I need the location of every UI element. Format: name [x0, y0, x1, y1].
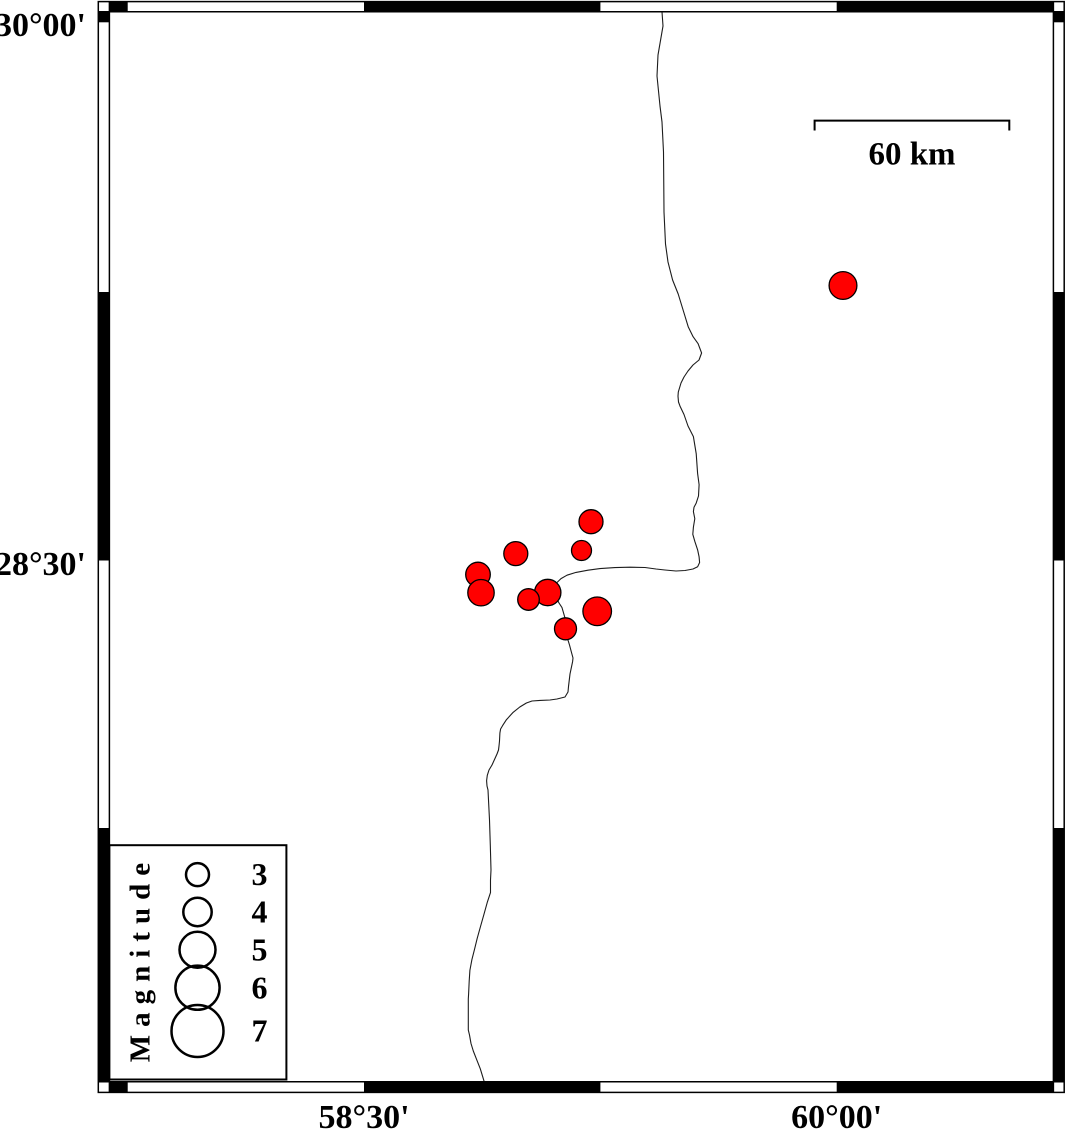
svg-text:58°30': 58°30' [318, 1099, 409, 1130]
svg-text:7: 7 [252, 1013, 268, 1049]
svg-text:28°30': 28°30' [0, 546, 86, 583]
svg-text:Magnitude: Magnitude [125, 855, 157, 1062]
svg-text:5: 5 [252, 931, 268, 967]
svg-text:6: 6 [252, 969, 268, 1005]
svg-text:60 km: 60 km [868, 137, 955, 173]
svg-text:4: 4 [252, 894, 268, 930]
svg-text:3: 3 [252, 856, 268, 892]
svg-text:60°00': 60°00' [791, 1099, 882, 1130]
svg-text:30°00': 30°00' [0, 7, 86, 44]
